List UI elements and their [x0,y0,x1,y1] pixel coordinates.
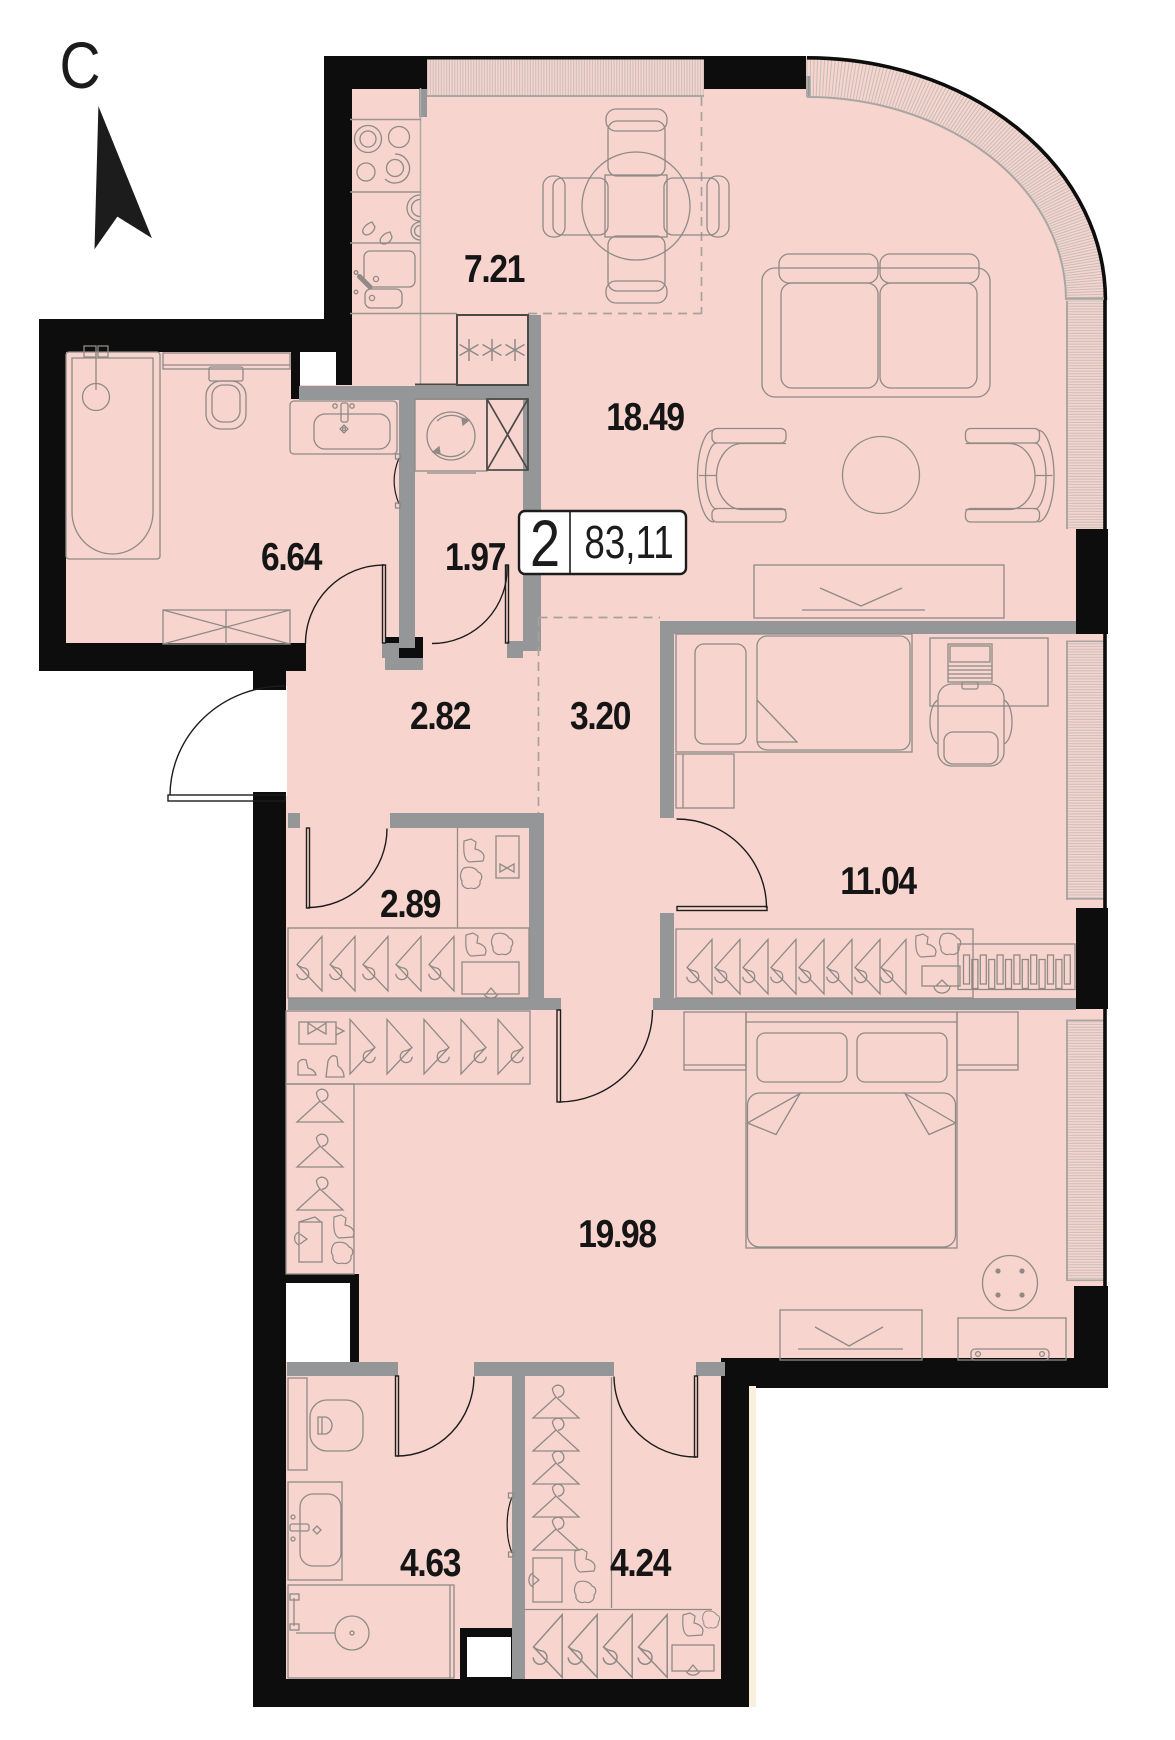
svg-text:2: 2 [530,506,560,580]
svg-text:4.63: 4.63 [400,1541,460,1585]
svg-text:83,11: 83,11 [584,516,673,568]
svg-text:2.82: 2.82 [410,694,470,738]
svg-text:11.04: 11.04 [840,859,918,903]
svg-text:6.64: 6.64 [261,535,323,579]
svg-text:С: С [60,29,101,103]
svg-text:3.20: 3.20 [570,694,630,738]
svg-text:2.89: 2.89 [380,882,440,926]
svg-text:1.97: 1.97 [445,535,505,579]
svg-text:19.98: 19.98 [578,1212,657,1256]
svg-text:4.24: 4.24 [610,1541,672,1585]
svg-text:7.21: 7.21 [464,247,525,291]
svg-text:18.49: 18.49 [606,395,684,439]
